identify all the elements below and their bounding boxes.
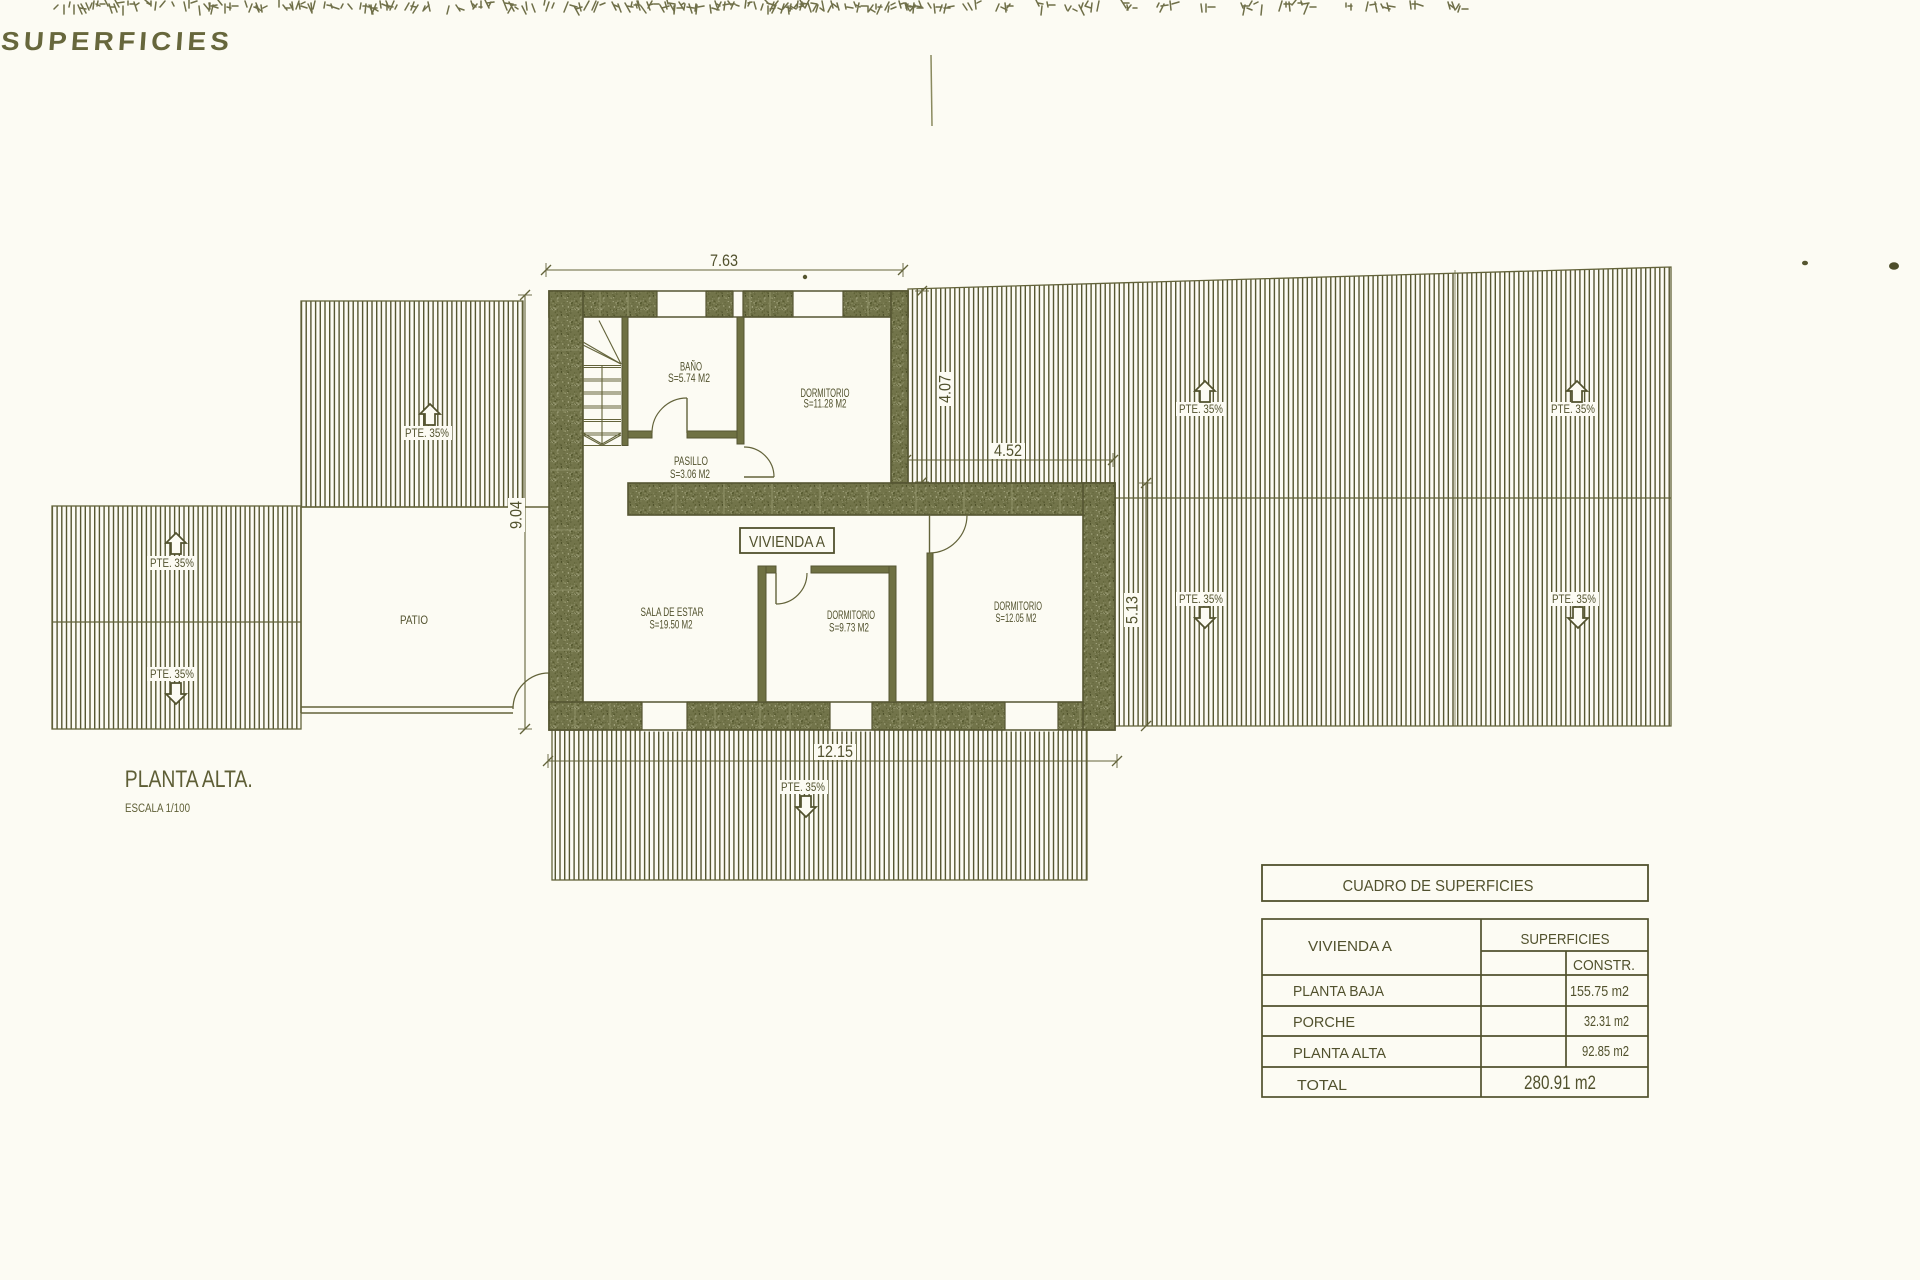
svg-text:PTE. 35%: PTE. 35% — [1179, 592, 1223, 606]
svg-text:12.15: 12.15 — [817, 742, 853, 761]
svg-text:PATIO: PATIO — [400, 613, 428, 627]
svg-text:PTE. 35%: PTE. 35% — [405, 426, 449, 440]
svg-text:280.91 m2: 280.91 m2 — [1524, 1073, 1596, 1094]
svg-text:PTE. 35%: PTE. 35% — [1552, 592, 1596, 606]
svg-text:SUPERFICIES: SUPERFICIES — [0, 26, 234, 56]
svg-text:4.52: 4.52 — [994, 441, 1022, 460]
svg-text:S=12.05 M2: S=12.05 M2 — [996, 611, 1037, 625]
svg-text:PTE. 35%: PTE. 35% — [1551, 402, 1595, 416]
svg-text:SUPERFICIES: SUPERFICIES — [1521, 931, 1610, 948]
svg-text:S=11.28 M2: S=11.28 M2 — [804, 397, 847, 411]
svg-text:155.75 m2: 155.75 m2 — [1570, 984, 1629, 1000]
svg-text:PLANTA ALTA.: PLANTA ALTA. — [125, 766, 253, 793]
svg-text:32.31 m2: 32.31 m2 — [1584, 1014, 1629, 1030]
svg-text:PTE. 35%: PTE. 35% — [150, 667, 194, 681]
svg-text:PORCHE: PORCHE — [1293, 1014, 1355, 1031]
svg-text:S=9.73 M2: S=9.73 M2 — [829, 621, 869, 635]
svg-text:PLANTA ALTA: PLANTA ALTA — [1293, 1045, 1386, 1062]
svg-text:VIVIENDA A: VIVIENDA A — [749, 534, 825, 551]
svg-text:4.07: 4.07 — [935, 375, 954, 403]
svg-text:VIVIENDA A: VIVIENDA A — [1308, 938, 1392, 955]
svg-text:5.13: 5.13 — [1122, 596, 1141, 624]
svg-text:7.63: 7.63 — [710, 251, 738, 270]
svg-text:TOTAL: TOTAL — [1297, 1077, 1347, 1094]
svg-text:ESCALA 1/100: ESCALA 1/100 — [125, 803, 190, 815]
svg-text:S=19.50 M2: S=19.50 M2 — [650, 618, 693, 632]
svg-text:PLANTA BAJA: PLANTA BAJA — [1293, 983, 1384, 1000]
svg-text:PTE. 35%: PTE. 35% — [1179, 402, 1223, 416]
svg-text:CONSTR.: CONSTR. — [1573, 957, 1635, 974]
svg-text:9.04: 9.04 — [506, 501, 525, 529]
svg-text:92.85 m2: 92.85 m2 — [1582, 1044, 1629, 1060]
svg-text:PTE. 35%: PTE. 35% — [781, 780, 825, 794]
svg-text:S=5.74 M2: S=5.74 M2 — [668, 371, 710, 385]
svg-text:PASILLO: PASILLO — [674, 454, 708, 468]
svg-text:CUADRO DE SUPERFICIES: CUADRO DE SUPERFICIES — [1343, 878, 1534, 895]
svg-text:S=3.06 M2: S=3.06 M2 — [670, 467, 710, 481]
svg-text:PTE. 35%: PTE. 35% — [150, 556, 194, 570]
